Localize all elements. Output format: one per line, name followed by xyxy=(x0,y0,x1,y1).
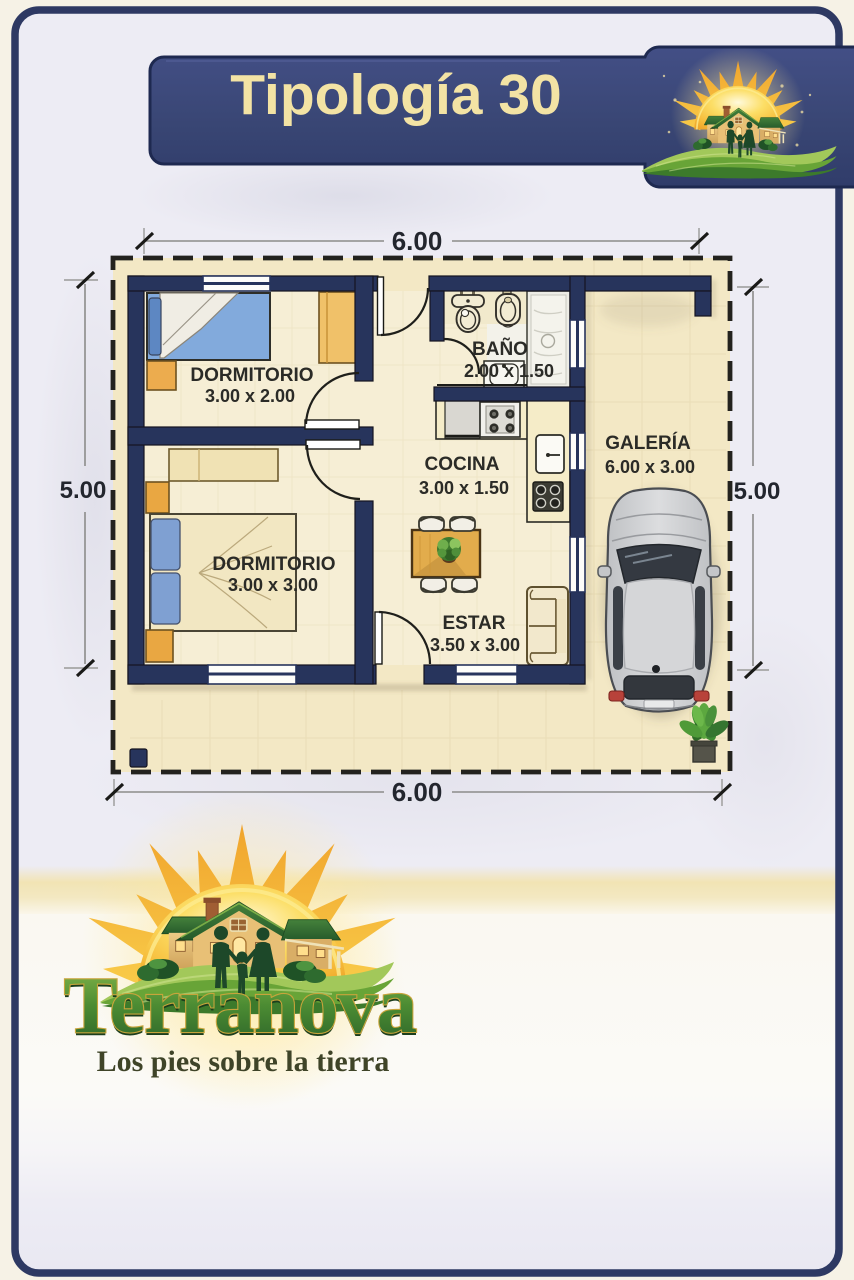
svg-text:3.00 x 3.00: 3.00 x 3.00 xyxy=(228,575,318,595)
svg-text:2.00 x 1.50: 2.00 x 1.50 xyxy=(464,361,554,381)
svg-text:6.00: 6.00 xyxy=(392,226,443,256)
svg-text:DORMITORIO: DORMITORIO xyxy=(212,554,335,575)
svg-text:6.00: 6.00 xyxy=(392,777,443,807)
svg-text:6.00 x 3.00: 6.00 x 3.00 xyxy=(605,457,695,477)
svg-text:3.50 x 3.00: 3.50 x 3.00 xyxy=(430,635,520,655)
svg-text:5.00: 5.00 xyxy=(734,478,781,505)
svg-text:ESTAR: ESTAR xyxy=(443,613,506,634)
svg-text:Los pies sobre la tierra: Los pies sobre la tierra xyxy=(97,1045,390,1078)
svg-text:DORMITORIO: DORMITORIO xyxy=(190,365,313,386)
svg-text:5.00: 5.00 xyxy=(60,477,107,504)
svg-text:3.00 x 1.50: 3.00 x 1.50 xyxy=(419,478,509,498)
svg-text:BAÑO: BAÑO xyxy=(472,338,528,360)
svg-text:3.00 x 2.00: 3.00 x 2.00 xyxy=(205,386,295,406)
svg-text:Terranova: Terranova xyxy=(64,960,417,1050)
svg-text:Tipología 30: Tipología 30 xyxy=(230,63,562,127)
svg-text:GALERÍA: GALERÍA xyxy=(605,432,691,454)
svg-text:COCINA: COCINA xyxy=(425,454,500,475)
